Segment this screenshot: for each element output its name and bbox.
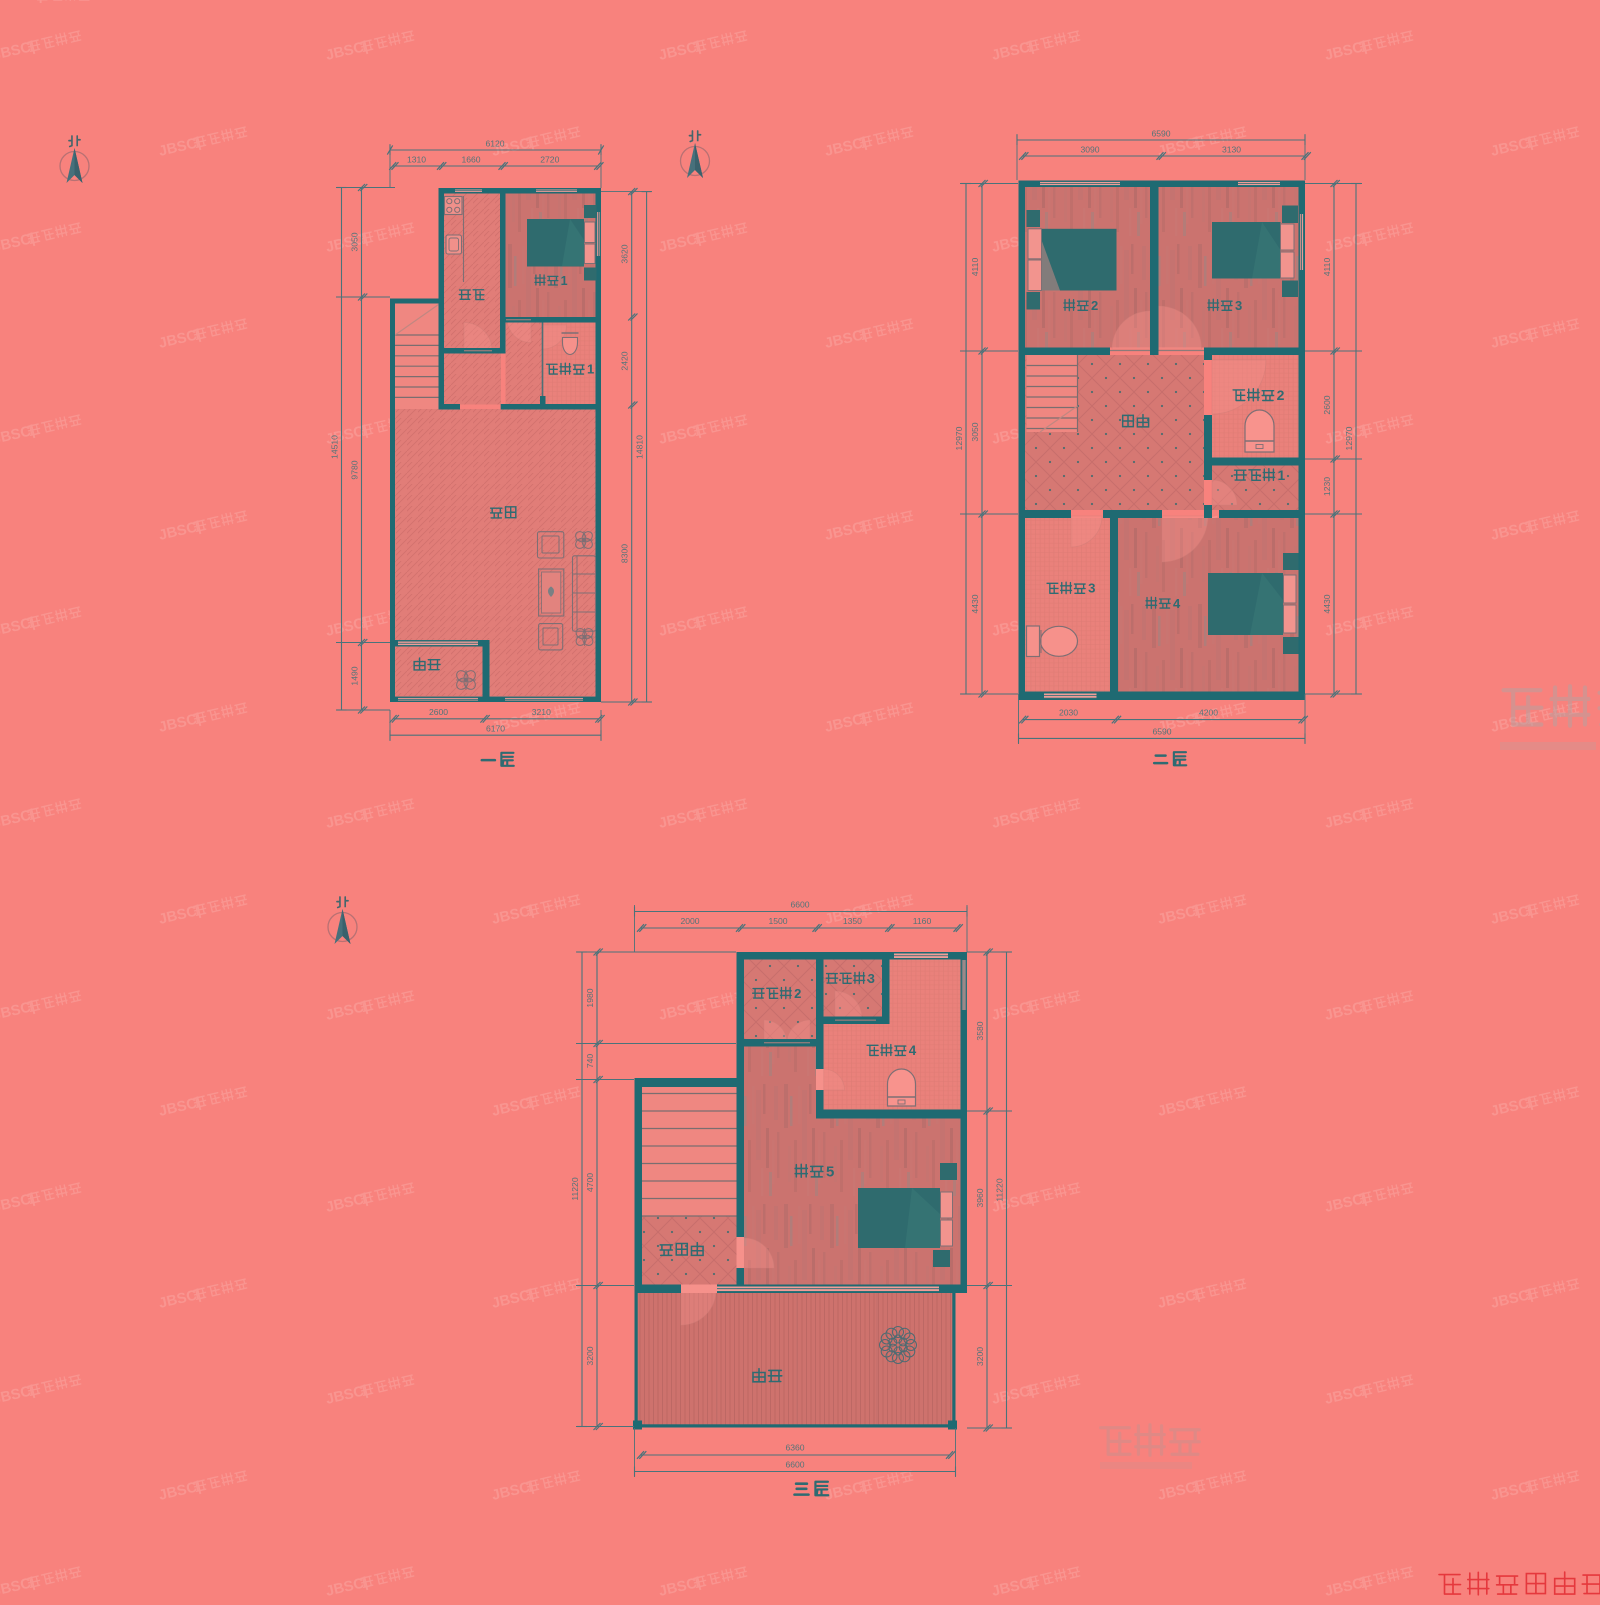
svg-text:4110: 4110 (970, 258, 980, 277)
svg-text:2720: 2720 (540, 155, 559, 165)
svg-text:4700: 4700 (585, 1173, 595, 1192)
svg-text:1500: 1500 (768, 916, 787, 926)
svg-text:2420: 2420 (620, 351, 630, 370)
svg-text:2000: 2000 (680, 916, 699, 926)
svg-text:2600: 2600 (429, 707, 448, 717)
svg-text:1660: 1660 (461, 155, 480, 165)
svg-text:3090: 3090 (1080, 145, 1099, 155)
svg-text:1: 1 (561, 274, 568, 288)
svg-text:3050: 3050 (970, 422, 980, 441)
svg-text:14510: 14510 (330, 435, 340, 459)
svg-text:4200: 4200 (1199, 708, 1218, 718)
svg-text:11220: 11220 (570, 1177, 580, 1200)
svg-text:3620: 3620 (620, 244, 630, 263)
svg-text:3580: 3580 (975, 1021, 985, 1040)
svg-text:2600: 2600 (1322, 395, 1332, 414)
svg-text:3050: 3050 (350, 232, 360, 251)
svg-text:4430: 4430 (1322, 594, 1332, 613)
svg-text:2030: 2030 (1059, 708, 1078, 718)
svg-text:14810: 14810 (635, 435, 645, 459)
svg-text:5: 5 (826, 1164, 834, 1181)
svg-text:3: 3 (868, 971, 875, 986)
svg-text:1310: 1310 (407, 155, 426, 165)
svg-text:6170: 6170 (486, 724, 505, 734)
svg-text:6600: 6600 (785, 1460, 804, 1470)
svg-text:3200: 3200 (975, 1347, 985, 1366)
svg-text:JBSC|: JBSC| (0, 0, 43, 4)
svg-text:2: 2 (1277, 387, 1285, 403)
svg-text:740: 740 (585, 1054, 595, 1069)
svg-text:4: 4 (1173, 596, 1181, 611)
svg-text:1490: 1490 (350, 666, 360, 685)
svg-text:6600: 6600 (790, 900, 809, 910)
svg-text:2: 2 (1091, 298, 1098, 313)
svg-text:1980: 1980 (585, 988, 595, 1007)
svg-text:12970: 12970 (954, 426, 964, 450)
svg-text:1350: 1350 (843, 916, 862, 926)
svg-text:6590: 6590 (1152, 727, 1171, 737)
svg-text:6360: 6360 (785, 1443, 804, 1453)
svg-text:4110: 4110 (1322, 258, 1332, 277)
svg-text:3: 3 (1235, 298, 1242, 313)
svg-text:11220: 11220 (995, 1178, 1005, 1201)
svg-text:4: 4 (909, 1043, 917, 1058)
svg-text:1: 1 (1278, 468, 1286, 483)
svg-text:8300: 8300 (620, 544, 630, 563)
svg-text:1: 1 (587, 362, 594, 377)
svg-text:2: 2 (794, 986, 801, 1001)
svg-text:9780: 9780 (350, 460, 360, 479)
svg-text:3130: 3130 (1222, 145, 1241, 155)
svg-text:12970: 12970 (1344, 426, 1354, 450)
svg-text:3: 3 (1088, 581, 1095, 596)
svg-text:3960: 3960 (975, 1188, 985, 1207)
svg-text:3200: 3200 (585, 1346, 595, 1365)
svg-text:4430: 4430 (970, 594, 980, 613)
svg-text:3210: 3210 (532, 707, 551, 717)
svg-text:6120: 6120 (485, 139, 504, 149)
svg-text:1160: 1160 (913, 916, 932, 926)
svg-text:1230: 1230 (1322, 477, 1332, 496)
svg-text:6590: 6590 (1151, 129, 1170, 139)
